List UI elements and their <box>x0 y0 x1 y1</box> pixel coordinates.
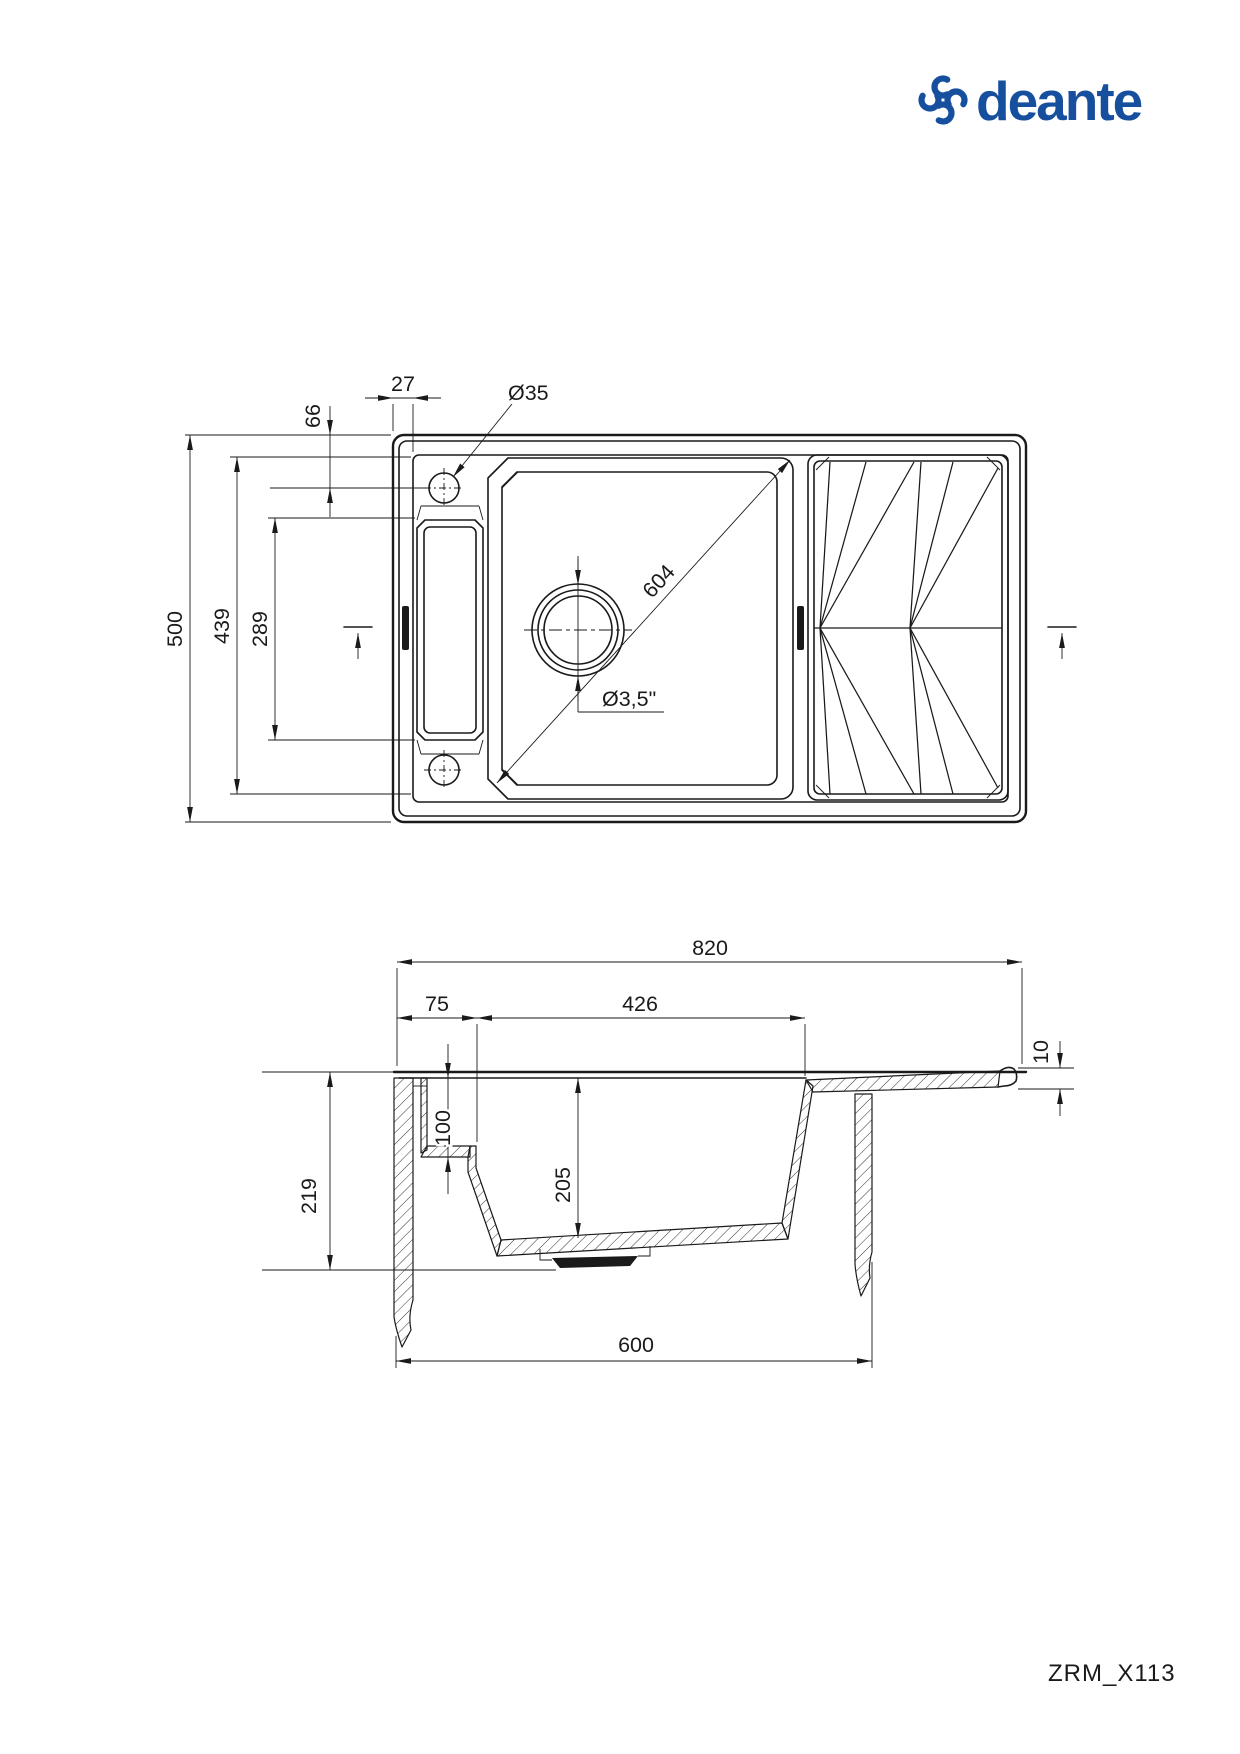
dim-bowl-opening: 426 <box>622 992 658 1016</box>
section-extension-lines <box>262 968 1074 1368</box>
dim-overall-depth: 500 <box>163 611 187 647</box>
top-view: 27 66 Ø35 500 439 289 604 Ø3,5" <box>163 372 1076 822</box>
magnet-clip-divider <box>797 606 804 650</box>
section-dimension-lines <box>330 962 1060 1361</box>
channel-floor-section <box>421 1146 470 1157</box>
dim-drain-diameter: Ø3,5" <box>602 687 656 711</box>
deante-logo-icon <box>922 79 965 122</box>
countertop-wall-right <box>855 1094 872 1296</box>
bowl-left-wall-section <box>468 1146 501 1256</box>
drainboard-slab-section <box>806 1071 1000 1092</box>
deante-logo: deante <box>922 70 1142 132</box>
drainboard-ridges <box>814 462 1002 794</box>
accessory-channel <box>417 506 483 754</box>
dim-hole-offset: 66 <box>301 404 325 428</box>
dim-left-rim-width: 75 <box>425 992 449 1016</box>
bowl-bottom-section <box>497 1223 788 1256</box>
sink-dimension-drawing: deante <box>0 0 1240 1754</box>
dim-channel-length: 289 <box>248 611 272 647</box>
dim-bowl-diagonal: 604 <box>638 560 680 603</box>
dim-rim-width: 27 <box>391 372 415 396</box>
bowl-right-wall-section <box>782 1080 813 1239</box>
section-view: 820 75 426 10 219 100 205 600 <box>262 936 1074 1368</box>
dim-bowl-depth: 205 <box>551 1167 575 1203</box>
dim-inner-depth: 439 <box>210 608 234 644</box>
technical-drawing-page: deante <box>0 0 1240 1754</box>
dim-cabinet-width: 600 <box>618 1333 654 1357</box>
channel-outer-wall-section <box>421 1078 427 1153</box>
brand-name: deante <box>976 70 1142 132</box>
drainboard <box>808 455 1008 800</box>
faucet-hole-top <box>424 468 464 508</box>
dim-overall-width: 820 <box>692 936 728 960</box>
section-cut-mark-left <box>344 627 372 659</box>
model-code: ZRM_X113 <box>1048 1660 1176 1687</box>
dim-ledge-depth: 100 <box>431 1110 455 1146</box>
dim-hole-diameter: Ø35 <box>508 381 549 405</box>
magnet-clip-left <box>402 606 409 650</box>
faucet-hole-bottom <box>424 750 464 790</box>
dim-overall-height: 219 <box>297 1178 321 1214</box>
section-cut-mark-right <box>1048 627 1076 659</box>
dim-board-thickness: 10 <box>1029 1040 1053 1064</box>
top-view-dimension-lines <box>190 398 790 822</box>
countertop-wall-left <box>394 1078 413 1347</box>
drain-boss <box>552 1256 638 1268</box>
bowl-outline <box>488 458 793 799</box>
